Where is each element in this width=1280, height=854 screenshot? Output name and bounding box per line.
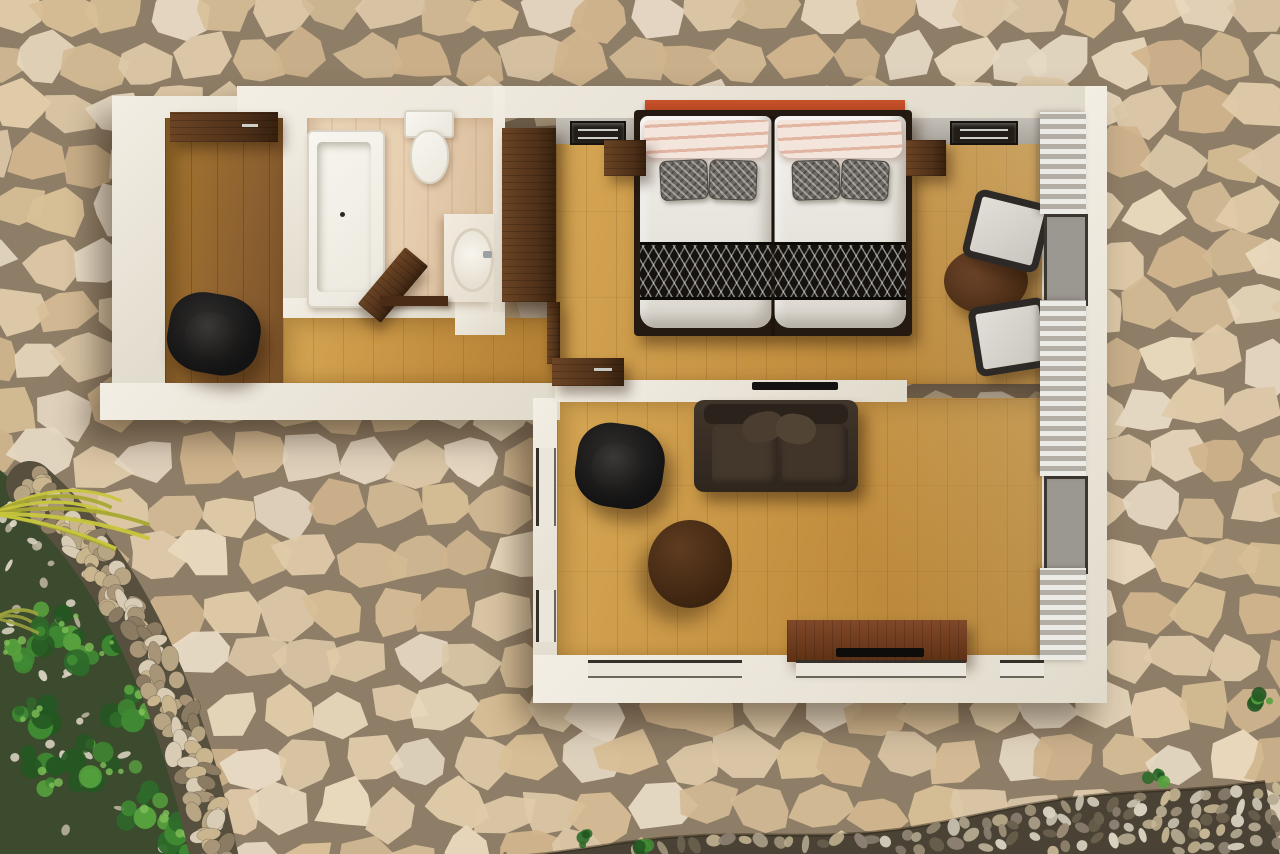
window-bottom-left <box>588 660 742 678</box>
curtains-upper <box>1040 112 1086 214</box>
window-left-lower <box>536 590 556 642</box>
hall-desk-handle <box>594 368 612 371</box>
window-left-upper <box>536 448 556 526</box>
glass-door-upper <box>1044 214 1088 306</box>
entry-console <box>170 112 278 142</box>
entry-console-handle <box>242 124 258 127</box>
glass-door-lower <box>1044 476 1088 574</box>
tv <box>836 648 924 657</box>
pillow <box>840 159 890 201</box>
wall-left <box>112 96 165 395</box>
window-bottom-right <box>1000 660 1044 678</box>
pillow <box>708 159 757 201</box>
folded-blanket-right <box>777 120 903 158</box>
hallway-floor <box>283 318 557 383</box>
wall-entry-bathroom <box>283 106 307 318</box>
vanity-sink <box>451 228 494 292</box>
bed-center-gap <box>771 116 775 336</box>
open-door-leaf <box>547 302 560 364</box>
wall-mounted-tv <box>752 382 838 390</box>
curtains-lower <box>1040 568 1086 660</box>
folded-blanket-left <box>643 120 769 158</box>
floor-plan-render <box>0 0 1280 854</box>
curtains-middle <box>1040 300 1086 476</box>
toilet-bowl <box>410 130 449 184</box>
window-bottom-center <box>796 660 966 678</box>
bathtub-basin <box>317 142 371 292</box>
built-in-drawers-right <box>950 121 1018 145</box>
wardrobe <box>502 128 556 302</box>
bathroom-threshold <box>380 296 448 306</box>
hall-desk <box>552 358 624 386</box>
wall-bottom-upper-block <box>100 383 560 420</box>
pillow <box>791 159 840 201</box>
nightstand-right <box>906 140 946 176</box>
pillow <box>659 159 709 201</box>
suite-building <box>0 0 1280 854</box>
coffee-table <box>648 520 732 608</box>
faucet <box>483 251 492 258</box>
nightstand-left <box>604 140 646 176</box>
bathtub-drain <box>340 212 345 217</box>
wall-right <box>1085 86 1107 703</box>
